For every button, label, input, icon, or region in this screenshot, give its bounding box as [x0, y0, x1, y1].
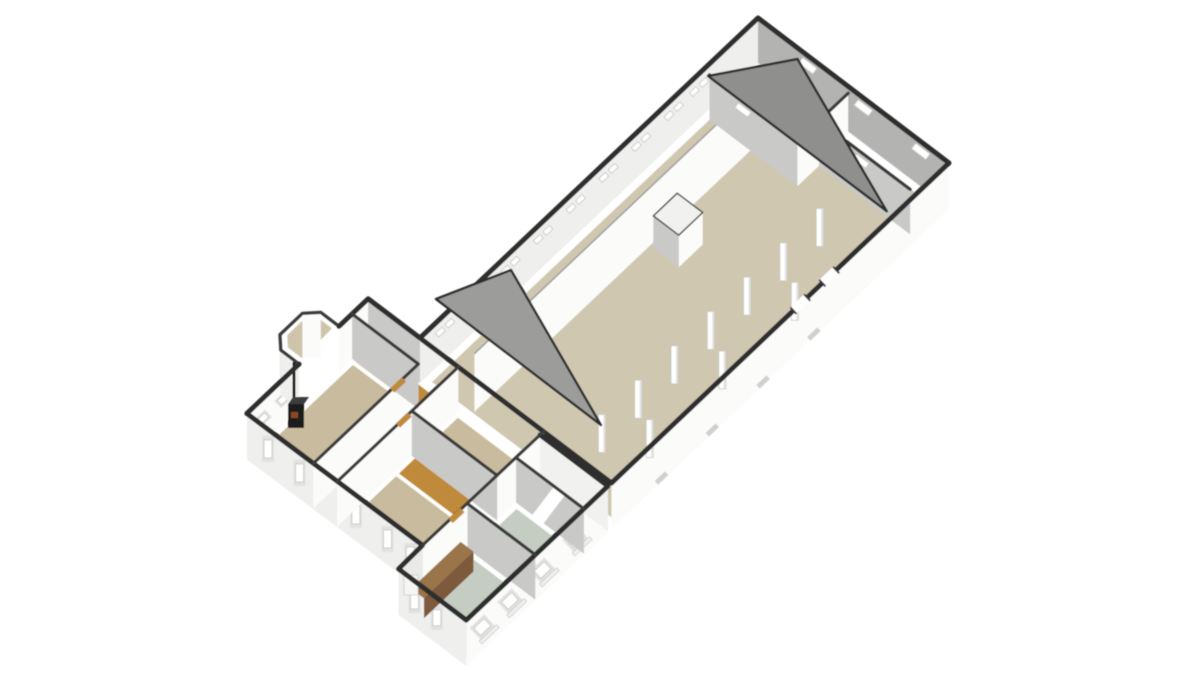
pillar [707, 312, 714, 350]
window-icon [433, 610, 441, 626]
pillar [816, 208, 823, 246]
window-icon [384, 530, 392, 548]
floorplan-3d-render [0, 0, 1200, 675]
floorplan-canvas: 3D floor plan [0, 0, 1200, 675]
window-icon [264, 440, 272, 458]
porch-wall [302, 312, 320, 358]
pillar [671, 346, 678, 384]
pillar [780, 243, 787, 281]
window-icon [296, 464, 304, 482]
pillar [744, 277, 751, 315]
pillar [635, 380, 642, 418]
window-icon [411, 593, 419, 609]
stove-door [291, 412, 298, 418]
